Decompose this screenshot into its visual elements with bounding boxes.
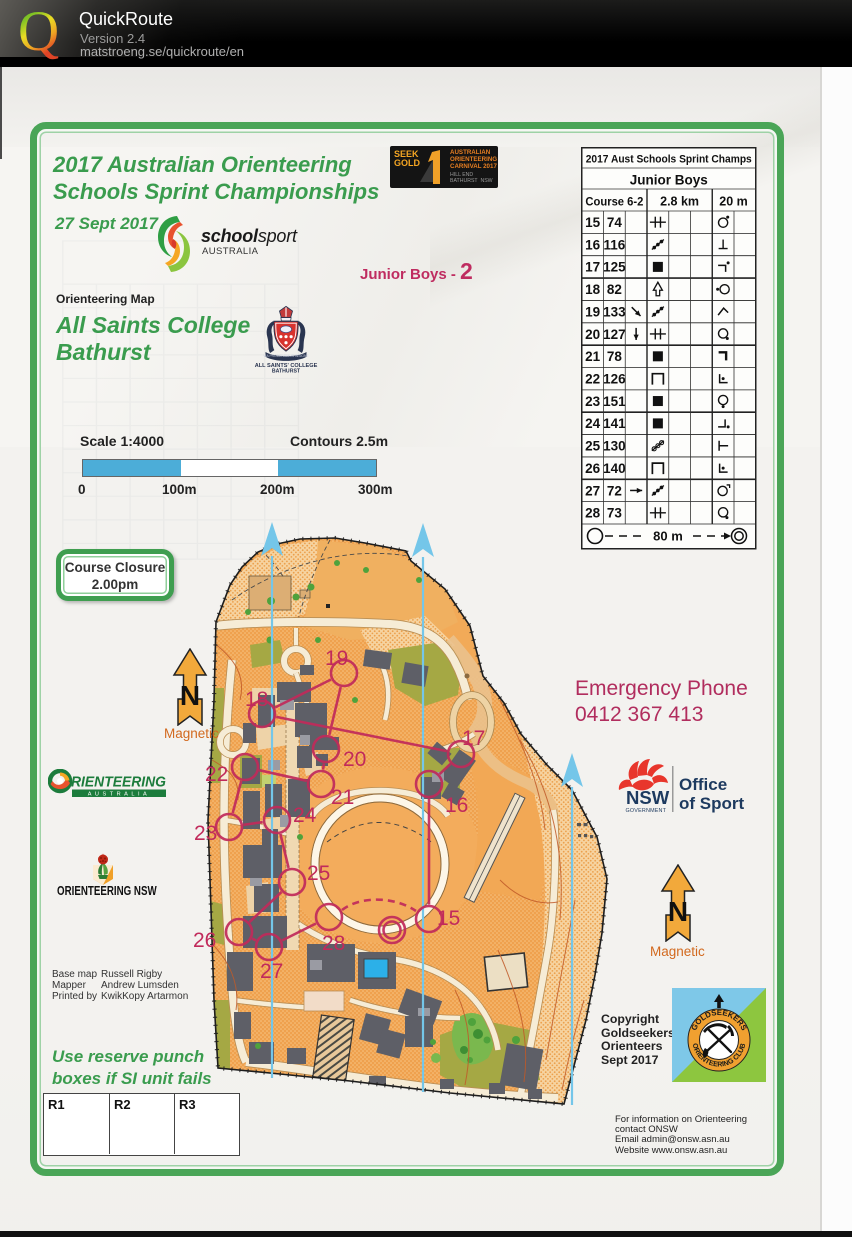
svg-text:28: 28 (322, 932, 345, 955)
svg-text:15: 15 (437, 907, 460, 930)
svg-text:NSW: NSW (626, 787, 670, 808)
svg-text:20: 20 (343, 748, 366, 771)
svg-text:25: 25 (307, 862, 330, 885)
svg-text:22: 22 (205, 763, 228, 786)
svg-text:GOVERNMENT: GOVERNMENT (626, 808, 667, 814)
svg-text:of Sport: of Sport (679, 794, 744, 813)
svg-text:26: 26 (193, 929, 216, 952)
svg-text:24: 24 (293, 804, 317, 827)
svg-text:N: N (668, 896, 688, 927)
svg-text:27: 27 (260, 960, 283, 983)
svg-text:18: 18 (245, 688, 268, 711)
svg-text:AUSTRALIA: AUSTRALIA (88, 792, 151, 798)
svg-text:23: 23 (194, 822, 217, 845)
svg-text:N: N (180, 680, 200, 711)
svg-text:21: 21 (331, 786, 354, 809)
svg-text:RIENTEERING: RIENTEERING (71, 775, 166, 791)
svg-text:16: 16 (445, 794, 468, 817)
svg-text:Office: Office (679, 775, 727, 794)
svg-text:19: 19 (325, 647, 348, 670)
svg-text:17: 17 (462, 727, 485, 750)
